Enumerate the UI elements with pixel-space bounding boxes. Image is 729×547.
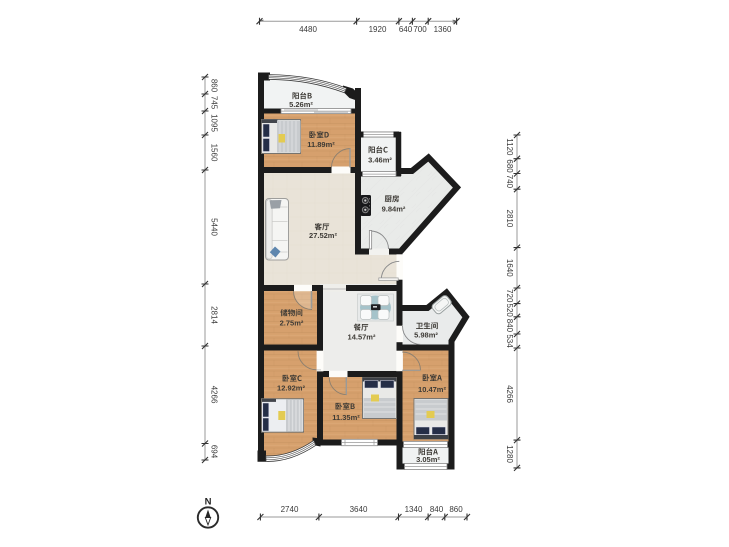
svg-text:700: 700 <box>413 25 427 34</box>
svg-text:N: N <box>205 497 212 508</box>
svg-text:3.05m²: 3.05m² <box>416 455 440 464</box>
svg-text:860: 860 <box>209 79 218 93</box>
svg-text:2810: 2810 <box>505 210 514 228</box>
svg-text:3640: 3640 <box>350 505 368 514</box>
svg-text:10.47m²: 10.47m² <box>418 385 446 394</box>
svg-text:840: 840 <box>430 505 444 514</box>
svg-text:11.35m²: 11.35m² <box>332 413 360 422</box>
svg-text:840: 840 <box>505 319 514 333</box>
svg-text:1920: 1920 <box>369 25 387 34</box>
svg-text:745: 745 <box>209 96 218 110</box>
svg-text:4480: 4480 <box>299 25 317 34</box>
svg-text:14.57m²: 14.57m² <box>348 333 376 342</box>
svg-text:1360: 1360 <box>434 25 452 34</box>
svg-text:4266: 4266 <box>209 386 218 404</box>
svg-text:5440: 5440 <box>209 218 218 236</box>
svg-text:5.98m²: 5.98m² <box>414 331 438 340</box>
svg-text:11.89m²: 11.89m² <box>307 140 335 149</box>
svg-text:1340: 1340 <box>405 505 423 514</box>
svg-text:2740: 2740 <box>281 505 299 514</box>
svg-text:9.84m²: 9.84m² <box>382 205 406 214</box>
svg-text:640: 640 <box>399 25 413 34</box>
svg-text:520: 520 <box>505 304 514 318</box>
svg-text:1280: 1280 <box>505 445 514 463</box>
svg-text:4266: 4266 <box>505 385 514 403</box>
svg-text:740: 740 <box>505 175 514 189</box>
svg-text:1095: 1095 <box>209 114 218 132</box>
svg-text:27.52m²: 27.52m² <box>309 231 337 240</box>
svg-text:1560: 1560 <box>209 144 218 162</box>
svg-text:12.92m²: 12.92m² <box>277 384 305 393</box>
svg-text:5.26m²: 5.26m² <box>289 100 313 109</box>
svg-text:694: 694 <box>209 445 218 459</box>
svg-text:2.75m²: 2.75m² <box>280 319 304 328</box>
svg-text:534: 534 <box>505 334 514 348</box>
svg-text:1120: 1120 <box>505 138 514 156</box>
svg-text:720: 720 <box>505 289 514 303</box>
svg-text:1640: 1640 <box>505 259 514 277</box>
svg-text:860: 860 <box>449 505 463 514</box>
svg-text:3.46m²: 3.46m² <box>368 156 392 165</box>
svg-text:2814: 2814 <box>209 306 218 324</box>
svg-text:680: 680 <box>505 159 514 173</box>
